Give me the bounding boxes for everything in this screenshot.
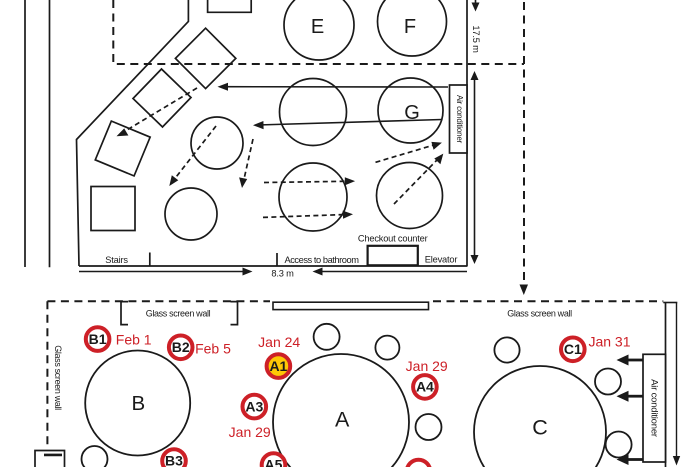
- svg-text:Air conditioner: Air conditioner: [455, 95, 464, 144]
- svg-text:A3: A3: [245, 398, 263, 414]
- svg-text:B: B: [132, 392, 146, 415]
- svg-text:A1: A1: [269, 358, 287, 374]
- svg-text:Glass screen wall: Glass screen wall: [53, 345, 63, 410]
- svg-text:F: F: [404, 16, 416, 38]
- svg-text:A4: A4: [416, 379, 434, 395]
- svg-text:Feb 1: Feb 1: [116, 332, 152, 348]
- svg-text:17.5 m: 17.5 m: [471, 25, 481, 53]
- svg-text:Air conditioner: Air conditioner: [649, 379, 660, 437]
- svg-text:A: A: [335, 407, 350, 431]
- svg-text:A5: A5: [265, 457, 283, 467]
- svg-text:Jan 31: Jan 31: [588, 333, 630, 349]
- svg-text:Jan 29: Jan 29: [229, 424, 271, 440]
- svg-text:Jan 24: Jan 24: [258, 334, 300, 350]
- svg-text:C: C: [532, 415, 548, 439]
- svg-text:Stairs: Stairs: [105, 255, 128, 265]
- svg-text:Checkout counter: Checkout counter: [358, 234, 428, 244]
- svg-text:B2: B2: [172, 339, 190, 355]
- svg-text:Access to bathroom: Access to bathroom: [284, 255, 359, 265]
- svg-text:Elevator: Elevator: [425, 255, 458, 265]
- svg-text:Glass screen wall: Glass screen wall: [507, 309, 572, 319]
- svg-text:Feb 5: Feb 5: [195, 340, 231, 356]
- svg-text:B1: B1: [89, 331, 107, 347]
- svg-text:Jan 29: Jan 29: [406, 358, 448, 374]
- svg-text:8.3 m: 8.3 m: [271, 269, 294, 279]
- svg-text:C1: C1: [564, 341, 582, 357]
- svg-text:B3: B3: [165, 453, 183, 467]
- svg-text:E: E: [311, 16, 324, 38]
- svg-text:Glass screen wall: Glass screen wall: [146, 309, 211, 319]
